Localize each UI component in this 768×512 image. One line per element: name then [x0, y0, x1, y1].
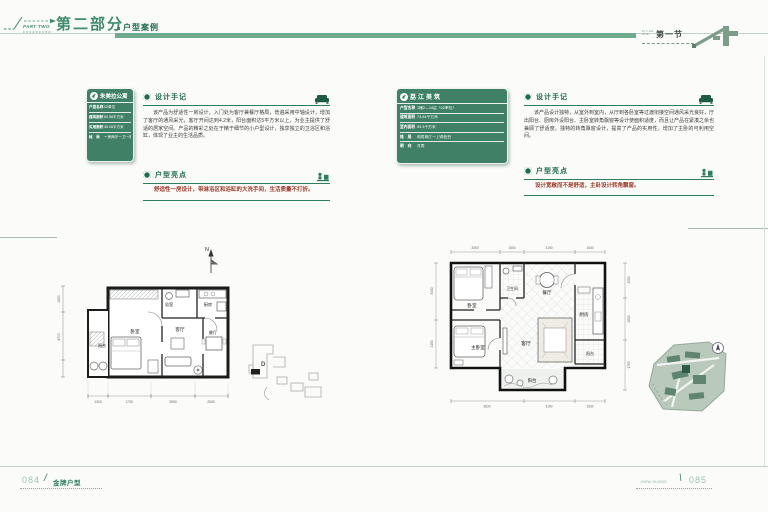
room-label-dining: 餐厅: [542, 289, 552, 296]
right-unit-title: 荔江美筑: [410, 92, 442, 101]
book-spread: PART TWO 第二部分 户型案例 DIYIJIE ONE 第一节 朱美拉公寓…: [0, 0, 768, 512]
footer-label-left: 金牌户型: [53, 477, 81, 487]
info-value: 60.58平方米: [104, 115, 124, 120]
dim-label: 2530: [207, 400, 215, 404]
info-value: 1幢2—14层（02单位）: [417, 106, 456, 111]
info-value: 59.3平方米: [417, 125, 436, 130]
part-label: PART TWO: [23, 24, 50, 29]
info-value: 两房两厅一卫两阳台: [417, 135, 451, 140]
info-value: 东南: [417, 144, 425, 149]
highlights-body: 舒适性一房设计，带淋浴区和浴缸的大洗手间，生活质量不打折。: [143, 186, 330, 195]
furniture-icon: [700, 168, 714, 178]
dim-label: 1750: [627, 361, 631, 368]
room-label-bedroom: 卧室: [467, 302, 477, 309]
section-dashed-rule: [642, 43, 694, 44]
right-unit-design-notes: 设计手记 该产品设计独特，从室外到室内，从厅到各卧室等过渡衔接空间通风采光良好，…: [524, 92, 714, 141]
dim-label: 3190: [545, 246, 552, 250]
highlights-body: 设计宽敞而不是舒适，主卧设计转角飘窗。: [524, 182, 714, 191]
room-label-balcony-east: 阳台: [586, 350, 594, 356]
footer-label-right: JINPAI HUXING: [640, 480, 667, 484]
part-title: 第二部分: [56, 13, 124, 34]
house-icon: [692, 22, 742, 48]
room-label-living: 客厅: [521, 340, 531, 347]
design-notes-body: 该产品为舒适性一房设计，入门处为客厅兼餐厅格局，普遍采用中轴设计，增加了客厅的通…: [143, 110, 330, 141]
footer-dotted-left: [20, 488, 102, 489]
dim-label: 2600: [627, 315, 631, 322]
info-label: 室内面积: [400, 125, 417, 130]
bullseye-icon: [143, 93, 151, 101]
design-notes-body: 该产品设计独特，从室外到室内，从厅到各卧室等过渡衔接空间通风采光良好，厅出阳台、…: [524, 110, 714, 141]
dim-label: 4700: [57, 333, 61, 341]
compass-icon: [713, 343, 724, 354]
room-label-balcony-south: 阳台: [528, 377, 537, 384]
room-label-bath: 卫生间: [506, 286, 518, 291]
dim-label: 1730: [125, 400, 133, 404]
dim-label: 2150: [430, 340, 434, 347]
room-label-master: 主卧室: [471, 344, 485, 351]
right-site-plan: [645, 338, 730, 418]
part-subtitle: 户型案例: [123, 22, 159, 33]
developer-logo-icon: [90, 92, 98, 100]
design-notes-title: 设计手记: [155, 92, 187, 102]
bullseye-icon: [143, 171, 151, 179]
left-site-mini-plan: D: [249, 345, 321, 400]
sofa-icon: [314, 94, 330, 104]
design-notes-title: 设计手记: [536, 92, 568, 102]
room-label-dining: 餐厅: [209, 329, 217, 336]
right-unit-highlights: 户型亮点 设计宽敞而不是舒适，主卧设计转角飘窗。: [524, 166, 714, 196]
left-edge-rule: [0, 237, 57, 238]
info-value: 一房两厅一卫一阳台: [104, 135, 131, 140]
dim-label: 1500: [508, 246, 515, 250]
bullseye-icon: [524, 93, 532, 101]
dim-label: 1530: [586, 246, 593, 250]
room-label-bedroom: 卧室: [130, 328, 140, 335]
sofa-icon: [698, 94, 714, 104]
footer-dotted-right: [636, 488, 712, 489]
dim-label: 3300: [471, 246, 478, 250]
section-title: 第一节: [656, 29, 683, 40]
info-label: 实用面积: [89, 125, 104, 130]
left-floor-plan: N 阳台 卧室 浴室: [55, 242, 340, 407]
room-label-living: 客厅: [175, 326, 185, 333]
highlights-title: 户型亮点: [536, 166, 568, 176]
furniture-icon: [316, 172, 330, 182]
site-marker-label: D: [261, 362, 266, 368]
room-label-bath: 浴室: [165, 301, 173, 308]
highlights-bottom-rule: [143, 200, 330, 201]
footer-backslash-icon: \: [679, 473, 682, 484]
info-label: 格 局: [89, 135, 104, 140]
dim-label: 3400: [430, 287, 434, 294]
info-value: 45.08平方米: [104, 125, 124, 130]
info-value: 02单位: [104, 105, 115, 110]
right-floor-plan: 卧室 卫生间 餐厅 厨房 主卧室 客厅 阳台 阳台 3300 1500 3190…: [428, 244, 638, 409]
dim-label: 1500: [627, 276, 631, 283]
north-label: N: [205, 247, 209, 253]
info-label: 建筑面积: [89, 115, 104, 120]
dim-label: 1300: [94, 400, 102, 404]
info-label: 户型名称: [89, 105, 104, 110]
left-unit-design-notes: 设计手记 该产品为舒适性一房设计，入门处为客厅兼餐厅格局，普遍采用中轴设计，增加…: [143, 92, 330, 141]
info-label: 建筑面积: [400, 115, 417, 120]
footer-slash-icon: /: [44, 473, 47, 484]
left-unit-info-box: 朱美拉公寓 户型名称 02单位 建筑面积 60.58平方米 实用面积 45.08…: [86, 88, 134, 162]
square-bullet-icon: [117, 27, 120, 30]
dim-label: 3990: [169, 400, 177, 404]
page-number-left: 084: [22, 475, 40, 485]
info-label: 朝 向: [400, 144, 417, 149]
room-label-balcony: 阳台: [98, 342, 106, 348]
dim-label: 1650: [57, 295, 61, 303]
header-green-bar: [115, 33, 636, 38]
left-unit-highlights: 户型亮点 舒适性一房设计，带淋浴区和浴缸的大洗手间，生活质量不打折。: [143, 170, 330, 201]
right-unit-info-table: 户型名称 1幢2—14层（02单位） 建筑面积 73.64平方米 室内面积 59…: [397, 104, 507, 151]
right-unit-info-box: 荔江美筑 户型名称 1幢2—14层（02单位） 建筑面积 73.64平方米 室内…: [396, 88, 508, 164]
developer-logo-icon: [400, 93, 408, 101]
info-value: 73.64平方米: [417, 115, 438, 120]
left-unit-title: 朱美拉公寓: [100, 92, 128, 100]
bullseye-icon: [524, 167, 532, 175]
room-label-kitchen: 厨房: [204, 301, 212, 308]
room-label-kitchen: 厨房: [579, 311, 589, 318]
dim-label: 3190: [545, 405, 552, 409]
left-unit-info-table: 户型名称 02单位 建筑面积 60.58平方米 实用面积 45.08平方米 格 …: [87, 103, 133, 142]
right-page-edge: [764, 56, 765, 466]
section-pinyin-line2: ONE: [642, 33, 654, 36]
info-label: 格 局: [400, 135, 417, 140]
right-edge-rule: [688, 228, 768, 229]
info-label: 户型名称: [400, 106, 417, 111]
dim-label: 1530: [586, 405, 593, 409]
dim-label: 3630: [483, 405, 490, 409]
section-pinyin: DIYIJIE ONE: [642, 30, 654, 37]
highlights-title: 户型亮点: [155, 170, 187, 180]
north-arrow-icon: N: [205, 247, 219, 273]
page-number-right: 085: [689, 475, 707, 485]
highlights-bottom-rule: [524, 195, 714, 196]
footer-rule: [0, 466, 768, 467]
